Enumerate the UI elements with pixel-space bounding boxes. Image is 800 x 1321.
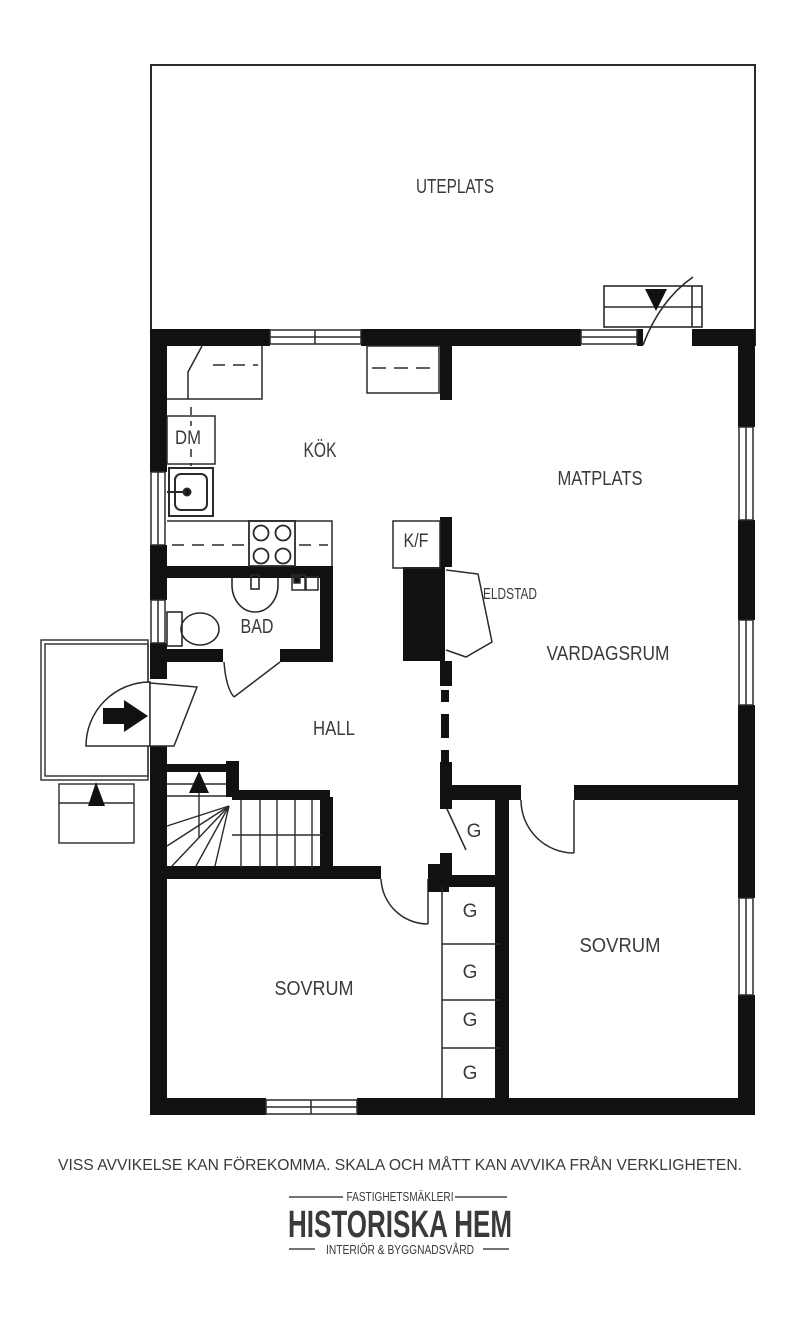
svg-text:DM: DM	[175, 428, 201, 449]
svg-text:KÖK: KÖK	[304, 439, 337, 462]
svg-text:HALL: HALL	[313, 718, 355, 740]
svg-text:K/F: K/F	[404, 531, 429, 552]
svg-text:SOVRUM: SOVRUM	[580, 935, 661, 957]
svg-text:BAD: BAD	[241, 616, 274, 638]
svg-text:VARDAGSRUM: VARDAGSRUM	[547, 643, 670, 665]
svg-text:G: G	[463, 962, 478, 983]
svg-text:VISS AVVIKELSE KAN FÖREKOMMA.: VISS AVVIKELSE KAN FÖREKOMMA. SKALA OCH …	[58, 1155, 742, 1174]
svg-text:G: G	[463, 901, 478, 922]
svg-text:FASTIGHETSMÄKLERI: FASTIGHETSMÄKLERI	[347, 1189, 454, 1204]
svg-text:UTEPLATS: UTEPLATS	[416, 176, 494, 198]
svg-text:ELDSTAD: ELDSTAD	[483, 586, 537, 603]
svg-text:SOVRUM: SOVRUM	[275, 978, 354, 1000]
svg-text:G: G	[467, 821, 482, 842]
svg-text:INTERIÖR & BYGGNADSVÅRD: INTERIÖR & BYGGNADSVÅRD	[326, 1242, 474, 1257]
svg-text:MATPLATS: MATPLATS	[558, 468, 643, 490]
svg-text:G: G	[463, 1063, 478, 1084]
svg-text:HISTORISKA HEM: HISTORISKA HEM	[288, 1204, 512, 1246]
svg-text:G: G	[463, 1010, 478, 1031]
